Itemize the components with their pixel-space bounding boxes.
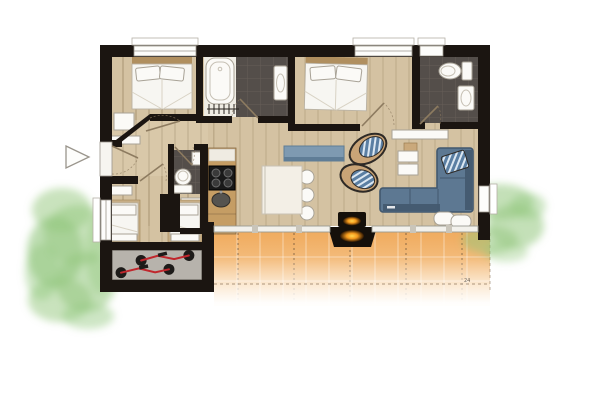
double-bed <box>132 57 192 109</box>
kitchen-cabinet <box>209 149 235 161</box>
wall-segment <box>100 280 214 292</box>
wall-segment <box>288 124 360 131</box>
dining-table <box>262 166 302 214</box>
washbasin <box>458 86 474 110</box>
wall-segment <box>100 176 138 184</box>
wall-segment <box>196 45 203 122</box>
window-sill <box>353 38 414 45</box>
window <box>479 186 489 212</box>
sliding-glass-wall <box>214 226 330 232</box>
double-bed <box>304 56 367 111</box>
wall-segment <box>180 228 208 234</box>
wall-segment <box>200 144 208 234</box>
toilet <box>174 169 192 193</box>
deck-dimension-mark: 24 <box>464 278 470 284</box>
glass-mullion <box>252 225 258 233</box>
wall-segment <box>412 45 420 129</box>
sliding-glass-wall <box>372 226 478 232</box>
deck-fade-out <box>206 238 498 314</box>
window-sill <box>490 184 497 214</box>
wall-segment <box>150 114 196 121</box>
window-sill <box>418 38 445 45</box>
entry-direction-arrow-icon <box>66 146 89 168</box>
bathtub <box>206 58 234 104</box>
window <box>420 46 443 56</box>
wall-segment <box>440 122 478 129</box>
chest <box>114 113 134 130</box>
glass-mullion <box>410 225 416 233</box>
window-sill <box>93 198 100 242</box>
wall-segment <box>168 144 174 196</box>
media-sideboard <box>392 130 448 139</box>
glass-mullion <box>296 225 302 233</box>
wall-segment <box>258 116 295 123</box>
kitchen-furniture <box>208 148 236 234</box>
entry-door-opening <box>100 142 112 176</box>
toilet <box>439 62 472 80</box>
wall-segment <box>160 194 180 232</box>
bedroom-second-furniture <box>304 56 367 111</box>
glass-mullion <box>446 225 452 233</box>
floor-plan-canvas: 24 <box>0 0 600 400</box>
blue-bench-edge <box>284 157 344 161</box>
window-sill <box>132 38 198 45</box>
washbasin <box>274 66 287 100</box>
floor-plan: 24 <box>0 0 600 400</box>
dining-furniture <box>262 166 314 220</box>
cooktop <box>209 166 235 190</box>
washbasin <box>192 152 201 165</box>
wall-segment <box>100 242 208 250</box>
wall-segment <box>196 116 232 123</box>
